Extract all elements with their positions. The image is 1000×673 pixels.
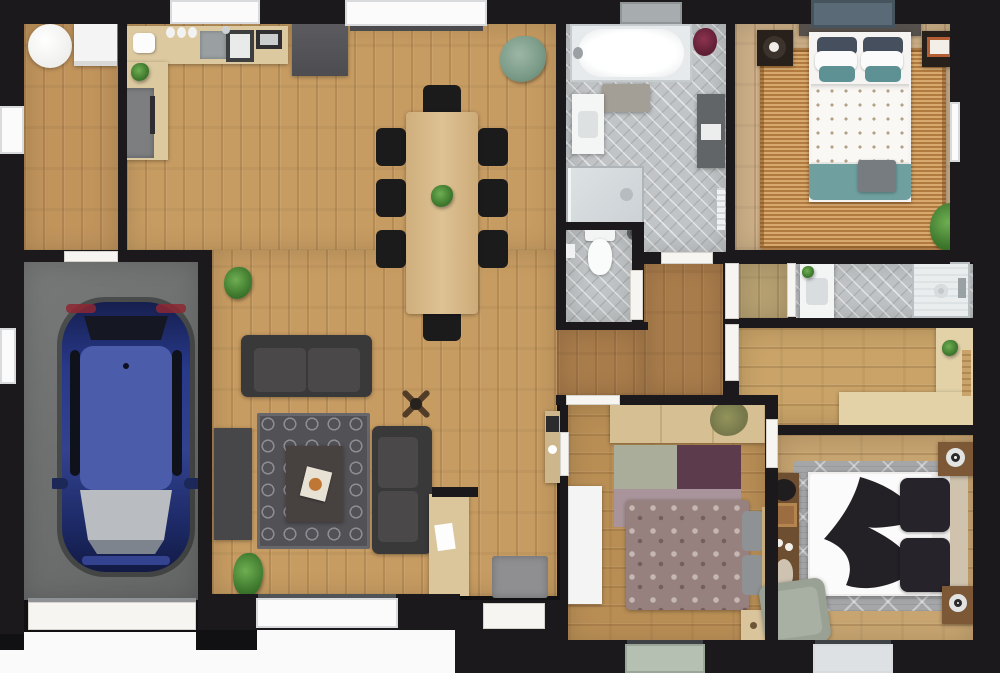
wall: [726, 24, 735, 264]
sofa-cushion: [308, 348, 360, 392]
dining-chair: [376, 128, 406, 166]
round-table: [28, 24, 72, 68]
window: [811, 0, 895, 28]
range-handle: [150, 96, 155, 134]
tub-faucet: [573, 47, 583, 59]
nightstand-br-top: [938, 442, 974, 476]
dining-table: [406, 112, 478, 314]
bathtub: [570, 24, 692, 82]
hall-floor-2: [557, 330, 644, 396]
dining-chair: [478, 128, 508, 166]
pillow-gray: [742, 511, 764, 551]
window: [813, 644, 893, 673]
toilet-paper-holder: [566, 244, 575, 258]
speaker: [546, 416, 559, 432]
window: [0, 106, 24, 154]
wall: [973, 250, 1000, 673]
wall: [0, 0, 24, 634]
pillow-black: [900, 538, 950, 592]
hall-floor-1: [644, 263, 723, 396]
coffee-maker: [133, 33, 155, 53]
chaise-sofa: [372, 426, 432, 554]
door-bedroom-bc-top: [566, 395, 620, 405]
jar: [188, 27, 197, 38]
dining-chair: [478, 179, 508, 217]
book-art: [308, 476, 324, 492]
sink: [226, 30, 254, 62]
refrigerator: [292, 22, 348, 76]
washing-machine: [74, 24, 117, 66]
toilet: [585, 226, 615, 278]
wall: [778, 425, 973, 435]
fan-motor: [410, 398, 422, 410]
vanity-2-basin: [806, 278, 828, 305]
pillow-black: [900, 478, 950, 532]
window: [950, 102, 960, 162]
bath-vanity: [572, 94, 604, 154]
window: [0, 328, 16, 384]
shower-2: [912, 262, 970, 318]
door-laundry-garage: [64, 251, 118, 262]
wall: [432, 487, 478, 497]
toilet-bowl: [588, 239, 612, 275]
door-bathroom: [661, 252, 713, 264]
vanity-basin: [578, 111, 598, 138]
sink-drainer: [200, 31, 226, 59]
sofa: [241, 335, 372, 397]
door-shower-room: [787, 263, 796, 317]
faucet: [222, 26, 230, 34]
wall: [556, 24, 566, 330]
sofa-cushion: [378, 491, 418, 542]
floor-plan: [0, 0, 1000, 673]
wall: [556, 222, 644, 230]
door-bedroom-tr: [725, 263, 739, 319]
gray-throw: [858, 160, 896, 192]
lamp: [949, 594, 967, 612]
sofa-cushion: [254, 348, 306, 392]
tv-cabinet: [214, 428, 252, 540]
towel: [701, 124, 721, 140]
wall: [198, 250, 212, 600]
window: [256, 598, 398, 628]
hall-console: [545, 411, 560, 483]
entry-desk: [429, 494, 469, 596]
knob: [750, 622, 757, 629]
toaster: [256, 30, 282, 49]
book: [300, 466, 332, 501]
headboard-br: [950, 474, 968, 596]
plant-decor: [710, 402, 748, 436]
desk-horizontal: [839, 392, 973, 426]
pillow-teal: [819, 66, 855, 82]
window: [625, 644, 705, 673]
duvet: [811, 84, 909, 168]
tub-basin: [578, 29, 684, 77]
vanity-plant: [802, 266, 814, 278]
sidewalk: [0, 650, 257, 673]
console-dish: [548, 445, 557, 454]
vanity-2: [800, 264, 834, 318]
wall: [735, 250, 950, 264]
open-book: [927, 37, 952, 57]
walk-in-shower: [566, 166, 644, 224]
papers: [434, 523, 455, 551]
window: [345, 0, 487, 26]
bath-rug: [602, 84, 650, 112]
garage-door: [28, 602, 196, 630]
candles: [785, 543, 793, 551]
sofa-cushion: [378, 437, 418, 488]
bath-cabinet: [697, 94, 725, 168]
rug-plum: [677, 445, 741, 489]
shower-door: [568, 168, 571, 222]
pillow-teal: [865, 66, 901, 82]
lamp: [946, 448, 965, 467]
radiator: [717, 188, 725, 230]
door-office: [725, 324, 739, 381]
floral-duvet: [626, 500, 749, 610]
nightstand-left: [757, 30, 793, 66]
blue-car: [52, 294, 200, 580]
desk-radiator: [962, 350, 971, 396]
dining-chair: [376, 230, 406, 268]
door-bedroom-br: [766, 419, 778, 468]
window: [170, 0, 260, 24]
nightstand-br-bottom: [942, 586, 974, 624]
drain: [934, 284, 948, 298]
coffee-table: [286, 446, 343, 522]
dining-chair: [478, 230, 508, 268]
wall: [118, 24, 127, 252]
white-wardrobe: [567, 486, 602, 604]
cup: [769, 42, 779, 52]
dining-chair: [376, 179, 406, 217]
ceiling-fan: [397, 385, 435, 423]
wall: [739, 318, 973, 328]
shower-2-handle: [958, 278, 966, 298]
doormat: [492, 556, 548, 598]
shower-head: [620, 188, 633, 201]
jar: [166, 27, 175, 38]
door-wc: [630, 270, 643, 320]
wall: [24, 250, 212, 262]
rug-sage: [614, 445, 677, 489]
entry-door: [483, 603, 545, 629]
patio: [257, 627, 455, 673]
window: [620, 2, 682, 24]
closet-floor: [739, 264, 788, 320]
jar: [177, 27, 186, 38]
door-bedroom-bc-side: [560, 432, 569, 476]
